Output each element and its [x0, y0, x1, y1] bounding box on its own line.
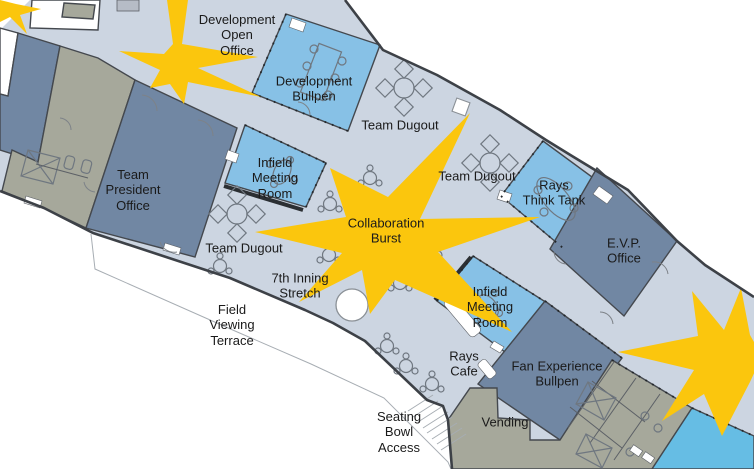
label-team-dugout-1: Team Dugout — [361, 117, 438, 132]
label-team-dugout-3: Team Dugout — [205, 240, 282, 255]
label-rays-think-tank: Rays Think Tank — [523, 178, 586, 209]
label-seating-bowl-access: Seating Bowl Access — [377, 409, 421, 455]
label-rays-cafe: Rays Cafe — [449, 349, 479, 380]
column-icon — [336, 289, 368, 321]
label-field-viewing-terrace: Field Viewing Terrace — [209, 302, 254, 348]
label-development-open-office: Development Open Office — [199, 12, 276, 58]
label-infield-meeting-room-2: Infield Meeting Room — [467, 284, 513, 330]
label-development-bullpen: Development Bullpen — [276, 74, 353, 105]
label-seventh-inning-stretch: 7th Inning Stretch — [271, 271, 328, 302]
label-infield-meeting-room-1: Infield Meeting Room — [252, 155, 298, 201]
label-team-dugout-2: Team Dugout — [438, 168, 515, 183]
label-team-president-office: Team President Office — [106, 167, 161, 213]
label-collaboration-burst: Collaboration Burst — [348, 216, 425, 247]
elevator-box — [117, 0, 139, 11]
label-fan-experience-bullpen: Fan Experience Bullpen — [511, 359, 602, 390]
label-vending: Vending — [482, 414, 529, 429]
label-evp-office: E.V.P. Office — [607, 236, 641, 267]
floor-plan: Development Open Office Development Bull… — [0, 0, 754, 469]
room-top-gray-closet — [62, 3, 95, 19]
